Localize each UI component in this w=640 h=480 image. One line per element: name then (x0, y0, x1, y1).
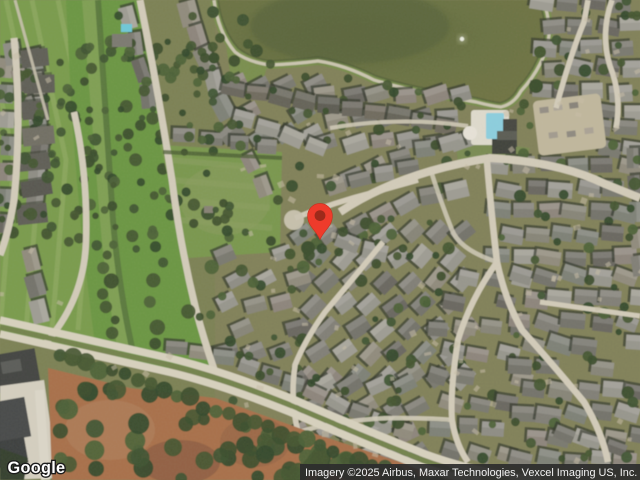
svg-text:Imagery ©2025 Airbus, Maxar Te: Imagery ©2025 Airbus, Maxar Technologies… (305, 467, 637, 479)
svg-text:Google: Google (8, 459, 66, 477)
